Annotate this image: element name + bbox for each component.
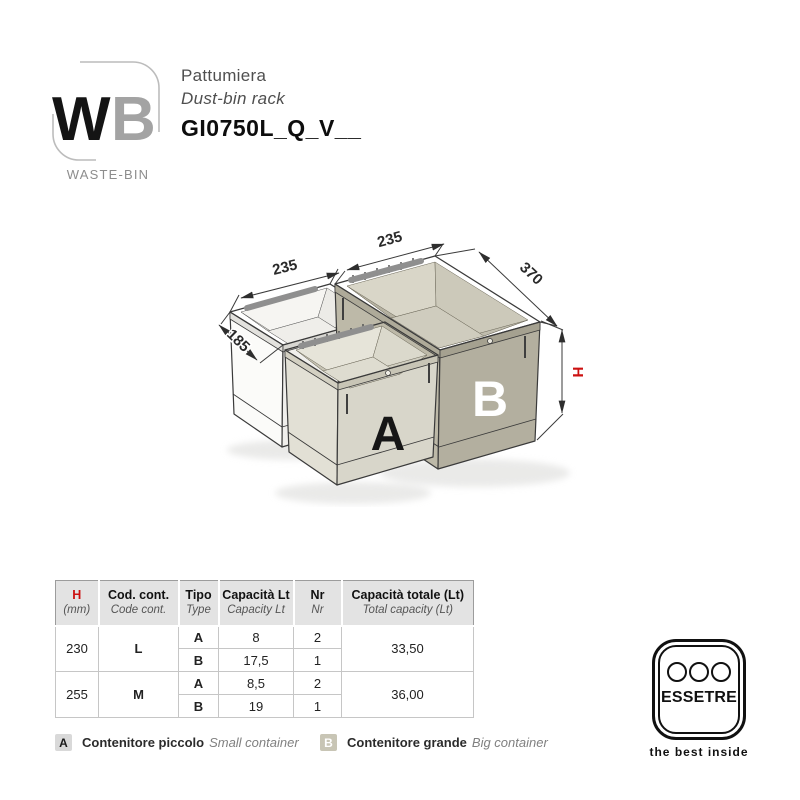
- essetre-logo: ESSETRE: [652, 639, 746, 740]
- legend-a-english: Small container: [209, 735, 299, 750]
- bin-a-handle-screw: [386, 371, 391, 376]
- dim-big-depth: 370: [516, 259, 546, 289]
- cell-nr: 1: [294, 695, 342, 718]
- cell-nr: 1: [294, 649, 342, 672]
- legend-chip-a: A: [55, 734, 72, 751]
- cell-capacity: 19: [219, 695, 294, 718]
- legend-small-container: A Contenitore piccolo Small container: [55, 734, 299, 751]
- spec-table-header-row: H (mm) Cod. cont. Code cont. Tipo Type C…: [56, 581, 474, 626]
- table-row: 230 L A 8 2 33,50: [56, 626, 474, 649]
- wb-logo: W B WASTE-BIN: [44, 55, 174, 190]
- cell-type: B: [179, 695, 219, 718]
- cell-capacity: 17,5: [219, 649, 294, 672]
- bin-a-label: A: [371, 408, 406, 461]
- datasheet-page: W B WASTE-BIN Pattumiera Dust-bin rack G…: [0, 0, 800, 800]
- essetre-circle: [667, 662, 687, 682]
- dim-small-width: 235: [271, 256, 299, 279]
- essetre-tagline: the best inside: [640, 745, 758, 759]
- col-header-capacity: Capacità Lt Capacity Lt: [219, 581, 294, 626]
- technical-drawing: B A: [185, 222, 585, 507]
- legend-chip-b: B: [320, 734, 337, 751]
- legend-b-english: Big container: [472, 735, 548, 750]
- col-header-nr: Nr Nr: [294, 581, 342, 626]
- bin-b-handle-screw: [488, 339, 493, 344]
- product-title-english: Dust-bin rack: [181, 89, 361, 109]
- bin-b-label: B: [472, 371, 508, 427]
- cell-code-l: L: [99, 626, 179, 672]
- cell-total-l: 33,50: [342, 626, 474, 672]
- legend-big-container: B Contenitore grande Big container: [320, 734, 548, 751]
- product-title-italian: Pattumiera: [181, 66, 361, 86]
- table-row: 255 M A 8,5 2 36,00: [56, 672, 474, 695]
- wb-logo-caption: WASTE-BIN: [67, 167, 150, 182]
- essetre-circle: [689, 662, 709, 682]
- cell-h-230: 230: [56, 626, 99, 672]
- product-code: GI0750L_Q_V__: [181, 115, 361, 142]
- cell-type: A: [179, 626, 219, 649]
- wb-logo-letter-b: B: [111, 85, 156, 154]
- header-text: Pattumiera Dust-bin rack GI0750L_Q_V__: [181, 66, 361, 142]
- cell-h-255: 255: [56, 672, 99, 718]
- cell-nr: 2: [294, 626, 342, 649]
- essetre-logo-inner-frame: ESSETRE: [658, 645, 740, 734]
- dim-height: H: [569, 367, 585, 378]
- dim-big-width: 235: [376, 228, 405, 251]
- legend-a-italian: Contenitore piccolo: [82, 735, 204, 750]
- essetre-name: ESSETRE: [661, 689, 737, 707]
- col-header-total: Capacità totale (Lt) Total capacity (Lt): [342, 581, 474, 626]
- wb-logo-letter-w: W: [52, 85, 111, 154]
- essetre-circles-icon: [667, 662, 731, 682]
- cell-code-m: M: [99, 672, 179, 718]
- col-header-h: H (mm): [56, 581, 99, 626]
- legend-b-italian: Contenitore grande: [347, 735, 467, 750]
- cell-total-m: 36,00: [342, 672, 474, 718]
- spec-table: H (mm) Cod. cont. Code cont. Tipo Type C…: [55, 580, 474, 718]
- col-header-type: Tipo Type: [179, 581, 219, 626]
- cell-type: B: [179, 649, 219, 672]
- cell-nr: 2: [294, 672, 342, 695]
- cell-capacity: 8,5: [219, 672, 294, 695]
- cell-type: A: [179, 672, 219, 695]
- essetre-circle: [711, 662, 731, 682]
- cell-capacity: 8: [219, 626, 294, 649]
- col-header-code: Cod. cont. Code cont.: [99, 581, 179, 626]
